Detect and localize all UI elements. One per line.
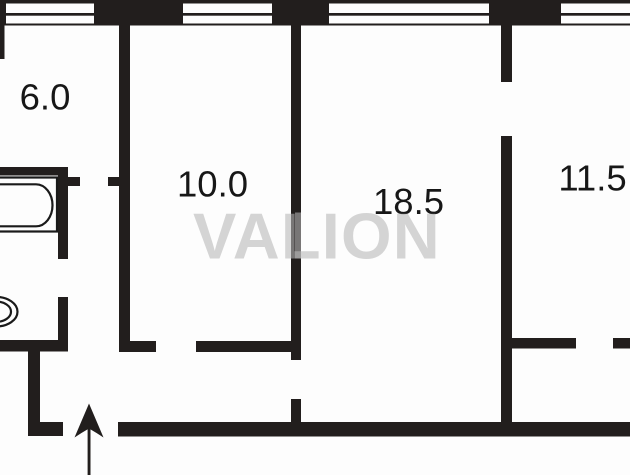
svg-text:VALION: VALION xyxy=(193,200,441,273)
svg-text:10.0: 10.0 xyxy=(177,164,248,205)
svg-text:11.5: 11.5 xyxy=(558,158,626,199)
svg-text:6.0: 6.0 xyxy=(20,77,71,118)
